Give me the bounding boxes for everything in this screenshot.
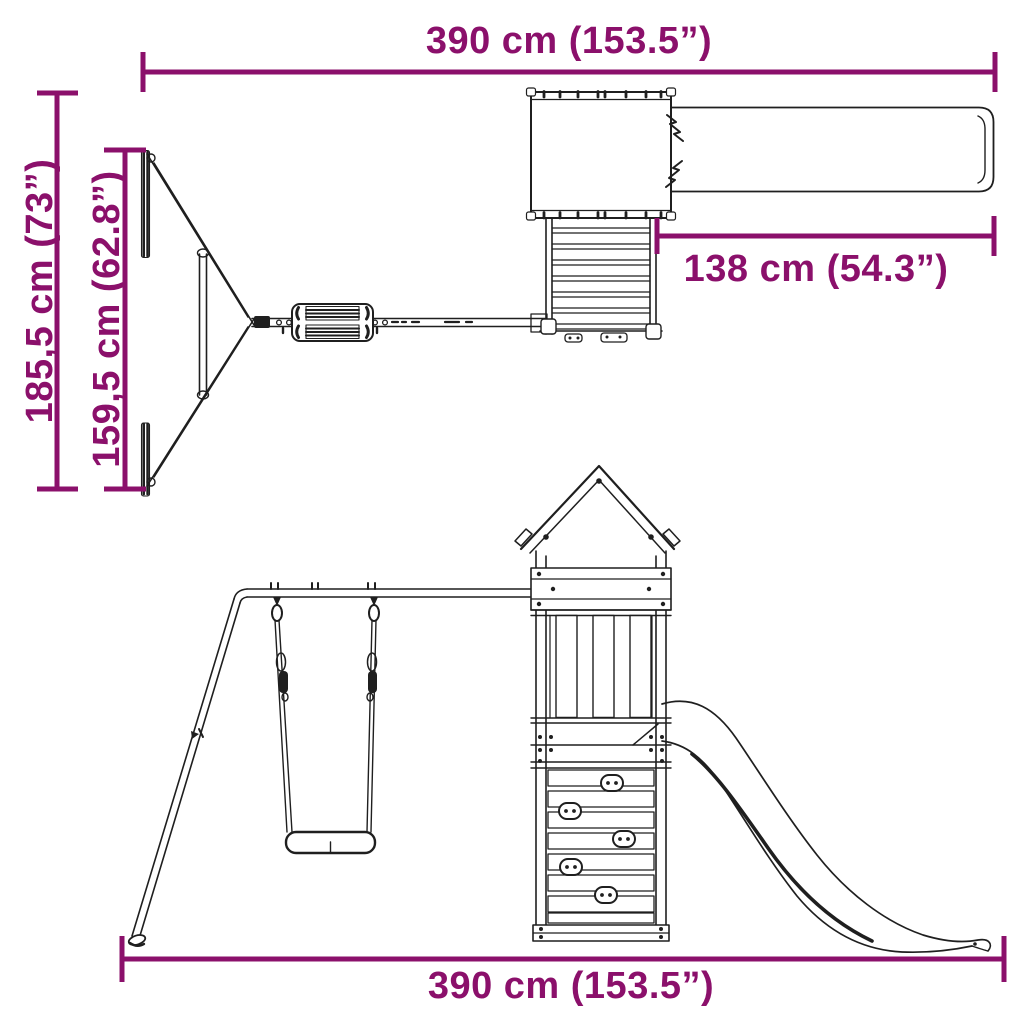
diagram-canvas: 390 cm (153.5”) 390 cm (153.5”) 138 cm (… — [0, 0, 1024, 1024]
front-view-swing-frame — [128, 583, 541, 947]
top-view-swing-seat — [292, 304, 373, 341]
dim-label-overall-depth: 185,5 cm (73”) — [19, 159, 61, 424]
front-view-swing-ropes — [272, 597, 379, 832]
front-view-rock-wall — [548, 770, 654, 923]
top-view-tower-roof — [527, 88, 676, 220]
front-view-swing-seat — [286, 832, 375, 853]
front-view-slide — [662, 701, 990, 952]
dimension-annotations: 390 cm (153.5”) 390 cm (153.5”) 138 cm (… — [19, 20, 1004, 1007]
top-view-ladder — [540, 218, 662, 342]
dim-label-bottom-width: 390 cm (153.5”) — [428, 965, 714, 1007]
dim-label-slide-length: 138 cm (54.3”) — [684, 248, 949, 290]
dimension-diagram: 390 cm (153.5”) 390 cm (153.5”) 138 cm (… — [0, 0, 1024, 1024]
dim-label-top-width: 390 cm (153.5”) — [426, 20, 712, 62]
dim-label-swing-depth: 159,5 cm (62.8”) — [86, 170, 128, 467]
top-view-slide — [666, 108, 994, 192]
